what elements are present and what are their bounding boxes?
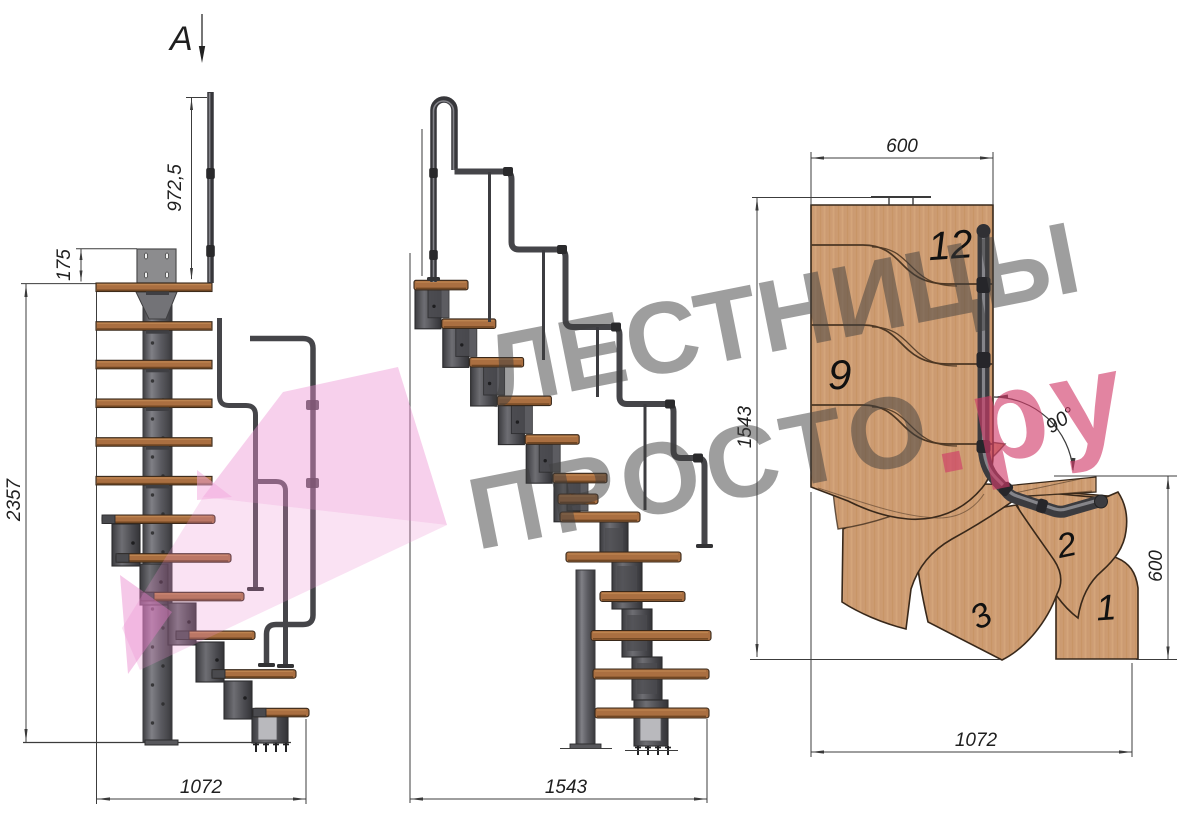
svg-text:175: 175 bbox=[54, 249, 75, 281]
svg-text:1072: 1072 bbox=[180, 777, 223, 798]
svg-text:A: A bbox=[168, 20, 193, 58]
svg-text:972,5: 972,5 bbox=[165, 164, 186, 212]
svg-text:1072: 1072 bbox=[955, 730, 998, 751]
svg-text:1: 1 bbox=[1095, 586, 1118, 628]
svg-text:1543: 1543 bbox=[545, 777, 588, 798]
svg-text:600: 600 bbox=[1146, 550, 1167, 582]
svg-text:600: 600 bbox=[886, 136, 918, 157]
svg-text:2357: 2357 bbox=[4, 477, 25, 522]
